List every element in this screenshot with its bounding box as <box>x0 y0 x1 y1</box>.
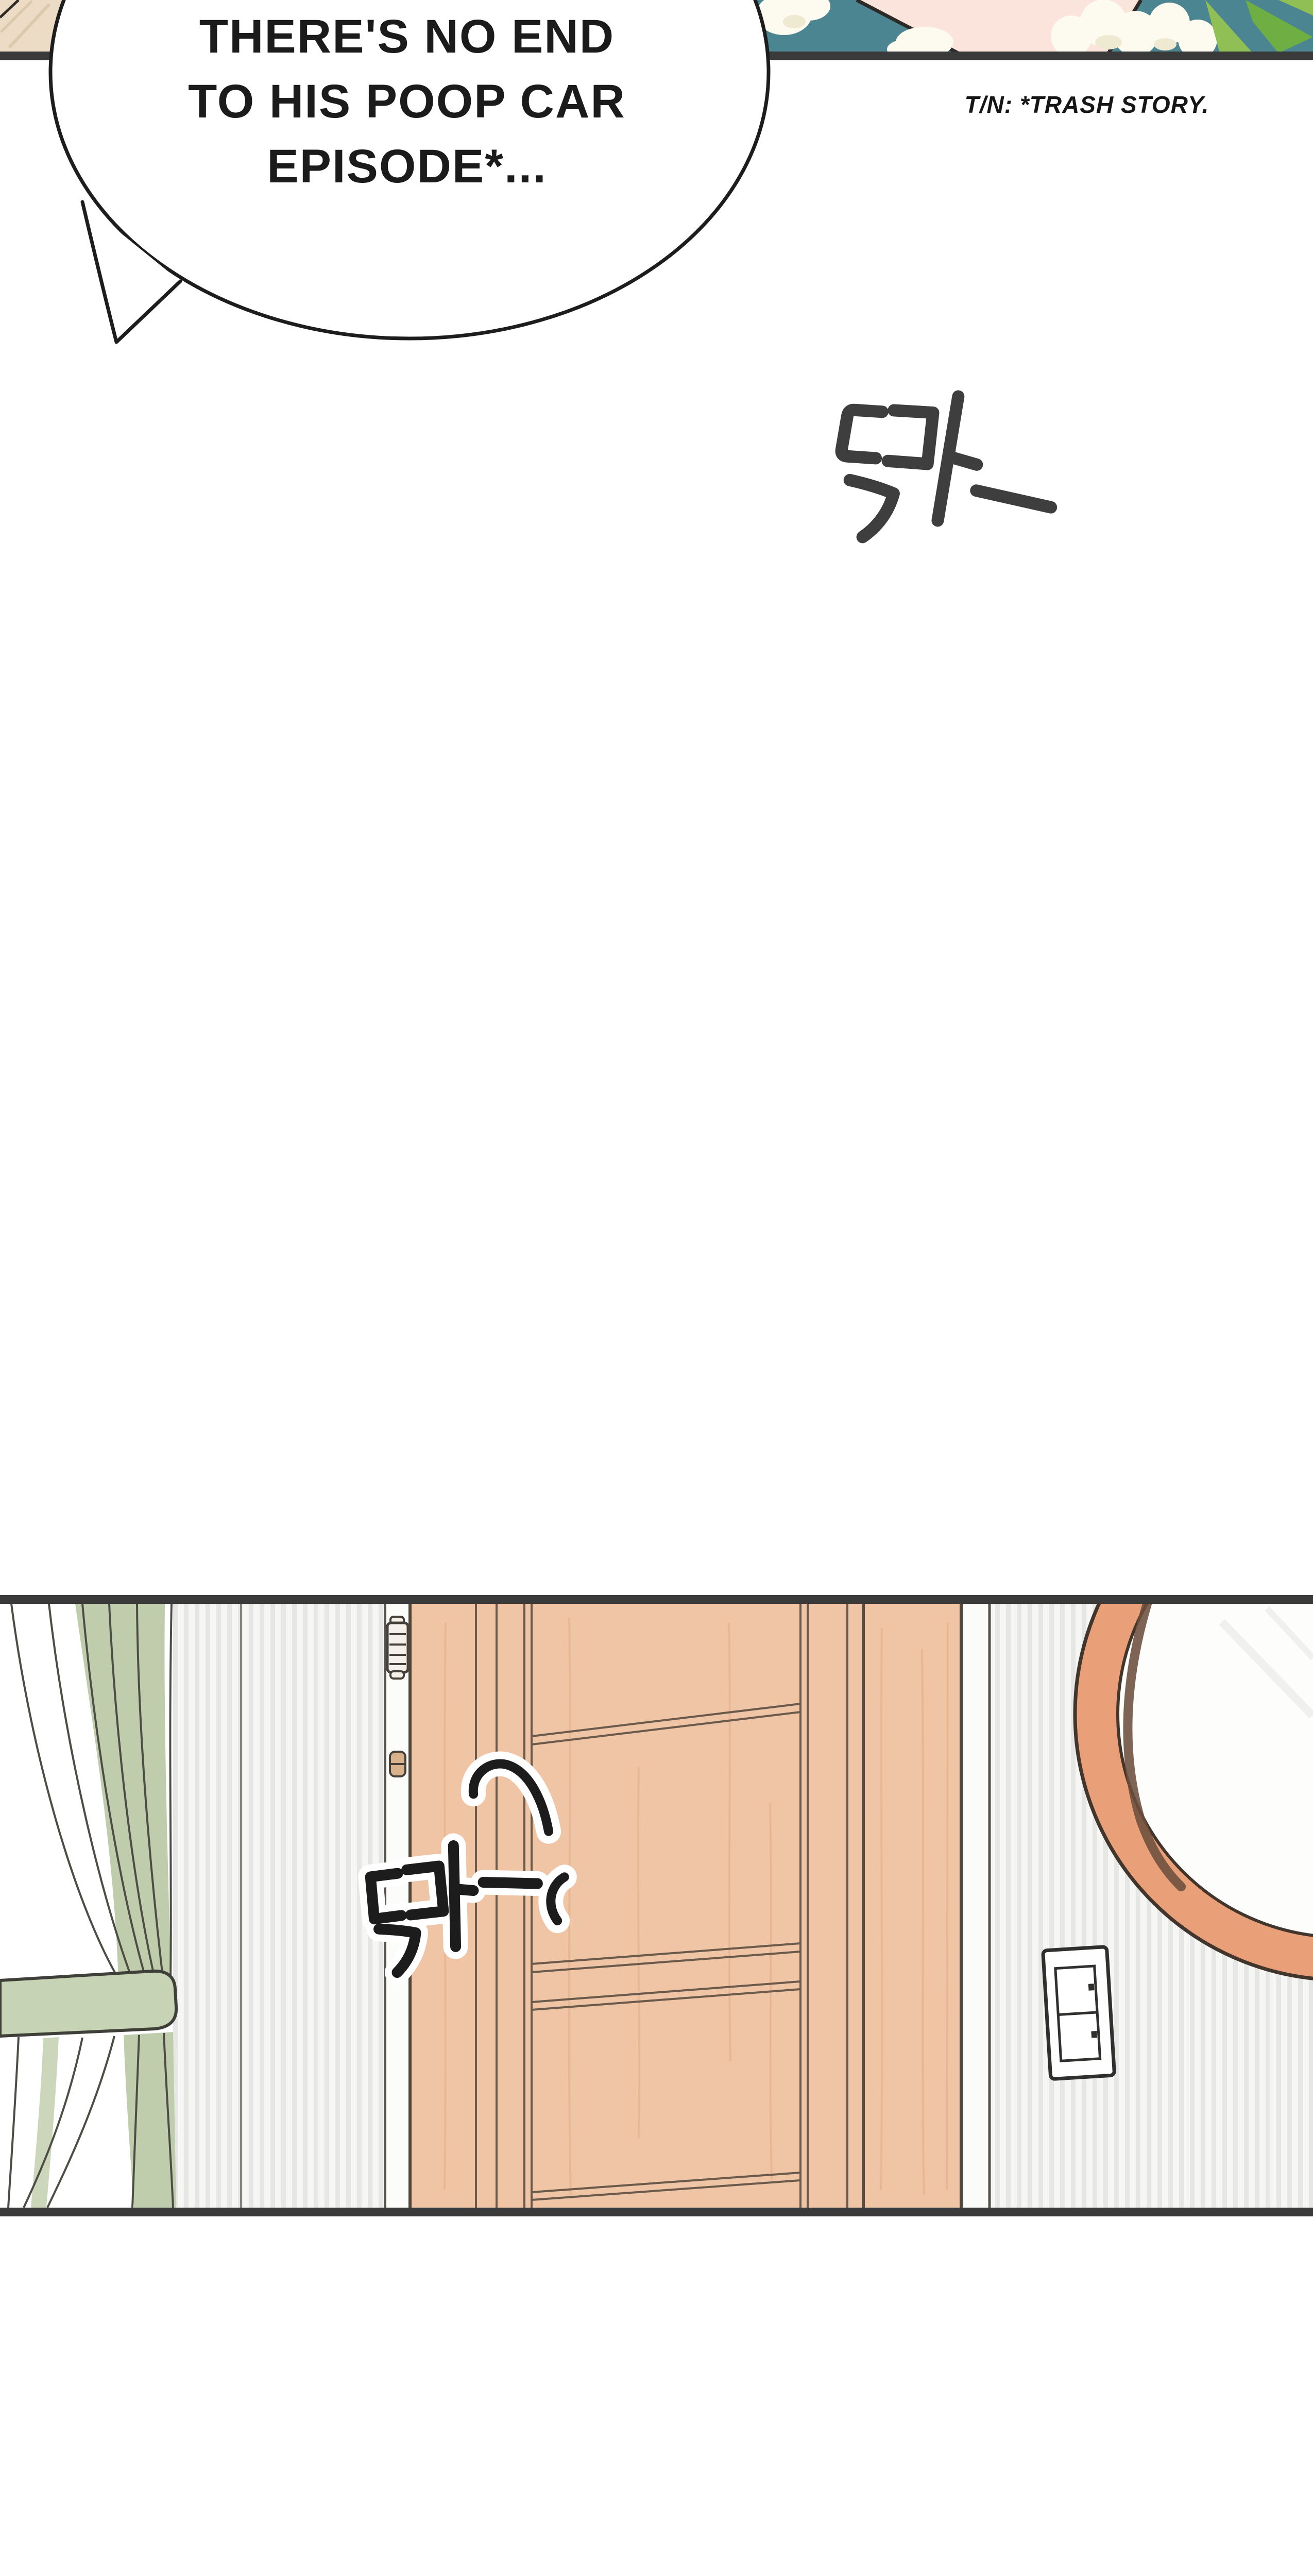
light-switch <box>1043 1947 1115 2079</box>
speech-bubble-text: THERE'S NO END TO HIS POOP CAR EPISODE*.… <box>155 4 659 199</box>
comic-page: 딱— <box>0 0 1313 2576</box>
sfx-ttak-top: 딱— <box>830 381 1064 562</box>
room-panel: 딱— <box>0 1448 1313 2216</box>
panel-border-top <box>0 1595 1313 1604</box>
door-hinge-lower <box>390 1752 405 1776</box>
comic-art: 딱— <box>0 0 1313 2576</box>
wooden-door <box>408 1604 963 2208</box>
curtain-tieback <box>0 1971 176 2036</box>
curtain <box>0 1604 176 2208</box>
speech-line: THERE'S NO END <box>155 4 659 69</box>
door-slab <box>408 1604 963 2208</box>
speech-line: EPISODE*... <box>155 134 659 199</box>
panel-border-bottom <box>0 2208 1313 2216</box>
translator-note: T/N: *TRASH STORY. <box>914 91 1259 118</box>
speech-line: TO HIS POOP CAR <box>155 69 659 134</box>
door-hinge <box>387 1617 408 1679</box>
